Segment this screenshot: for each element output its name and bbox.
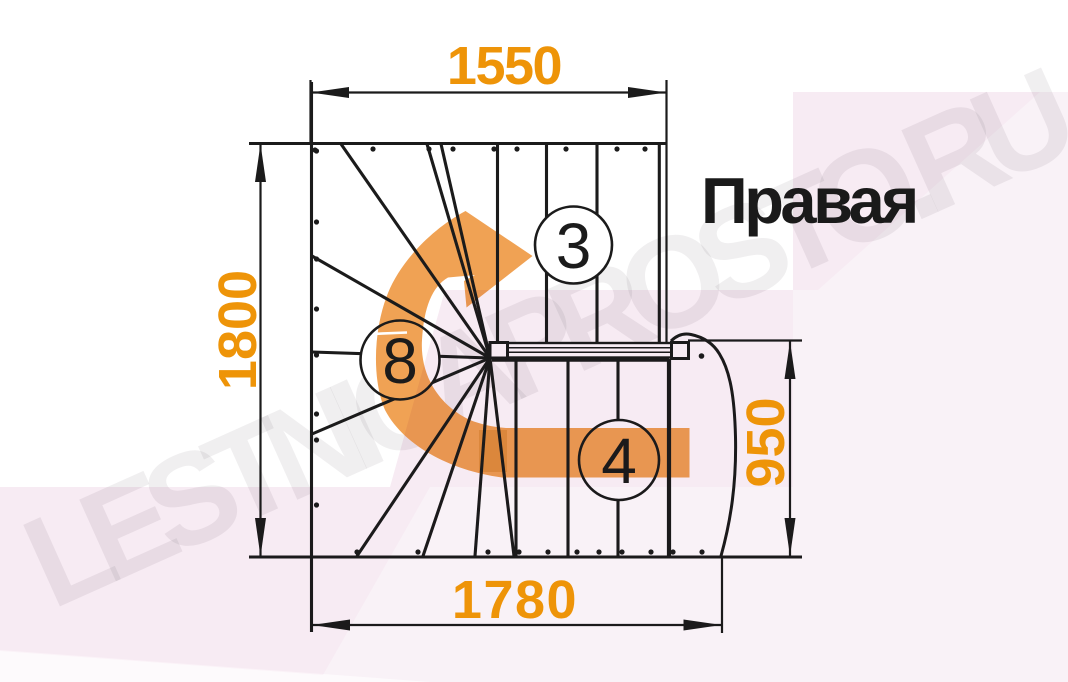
svg-text:1780: 1780 xyxy=(452,570,578,630)
svg-text:8: 8 xyxy=(382,325,418,397)
svg-text:1550: 1550 xyxy=(447,36,561,96)
svg-text:950: 950 xyxy=(736,397,796,487)
svg-text:Правая: Правая xyxy=(701,164,916,237)
svg-text:3: 3 xyxy=(556,210,592,282)
svg-text:1800: 1800 xyxy=(208,270,268,390)
